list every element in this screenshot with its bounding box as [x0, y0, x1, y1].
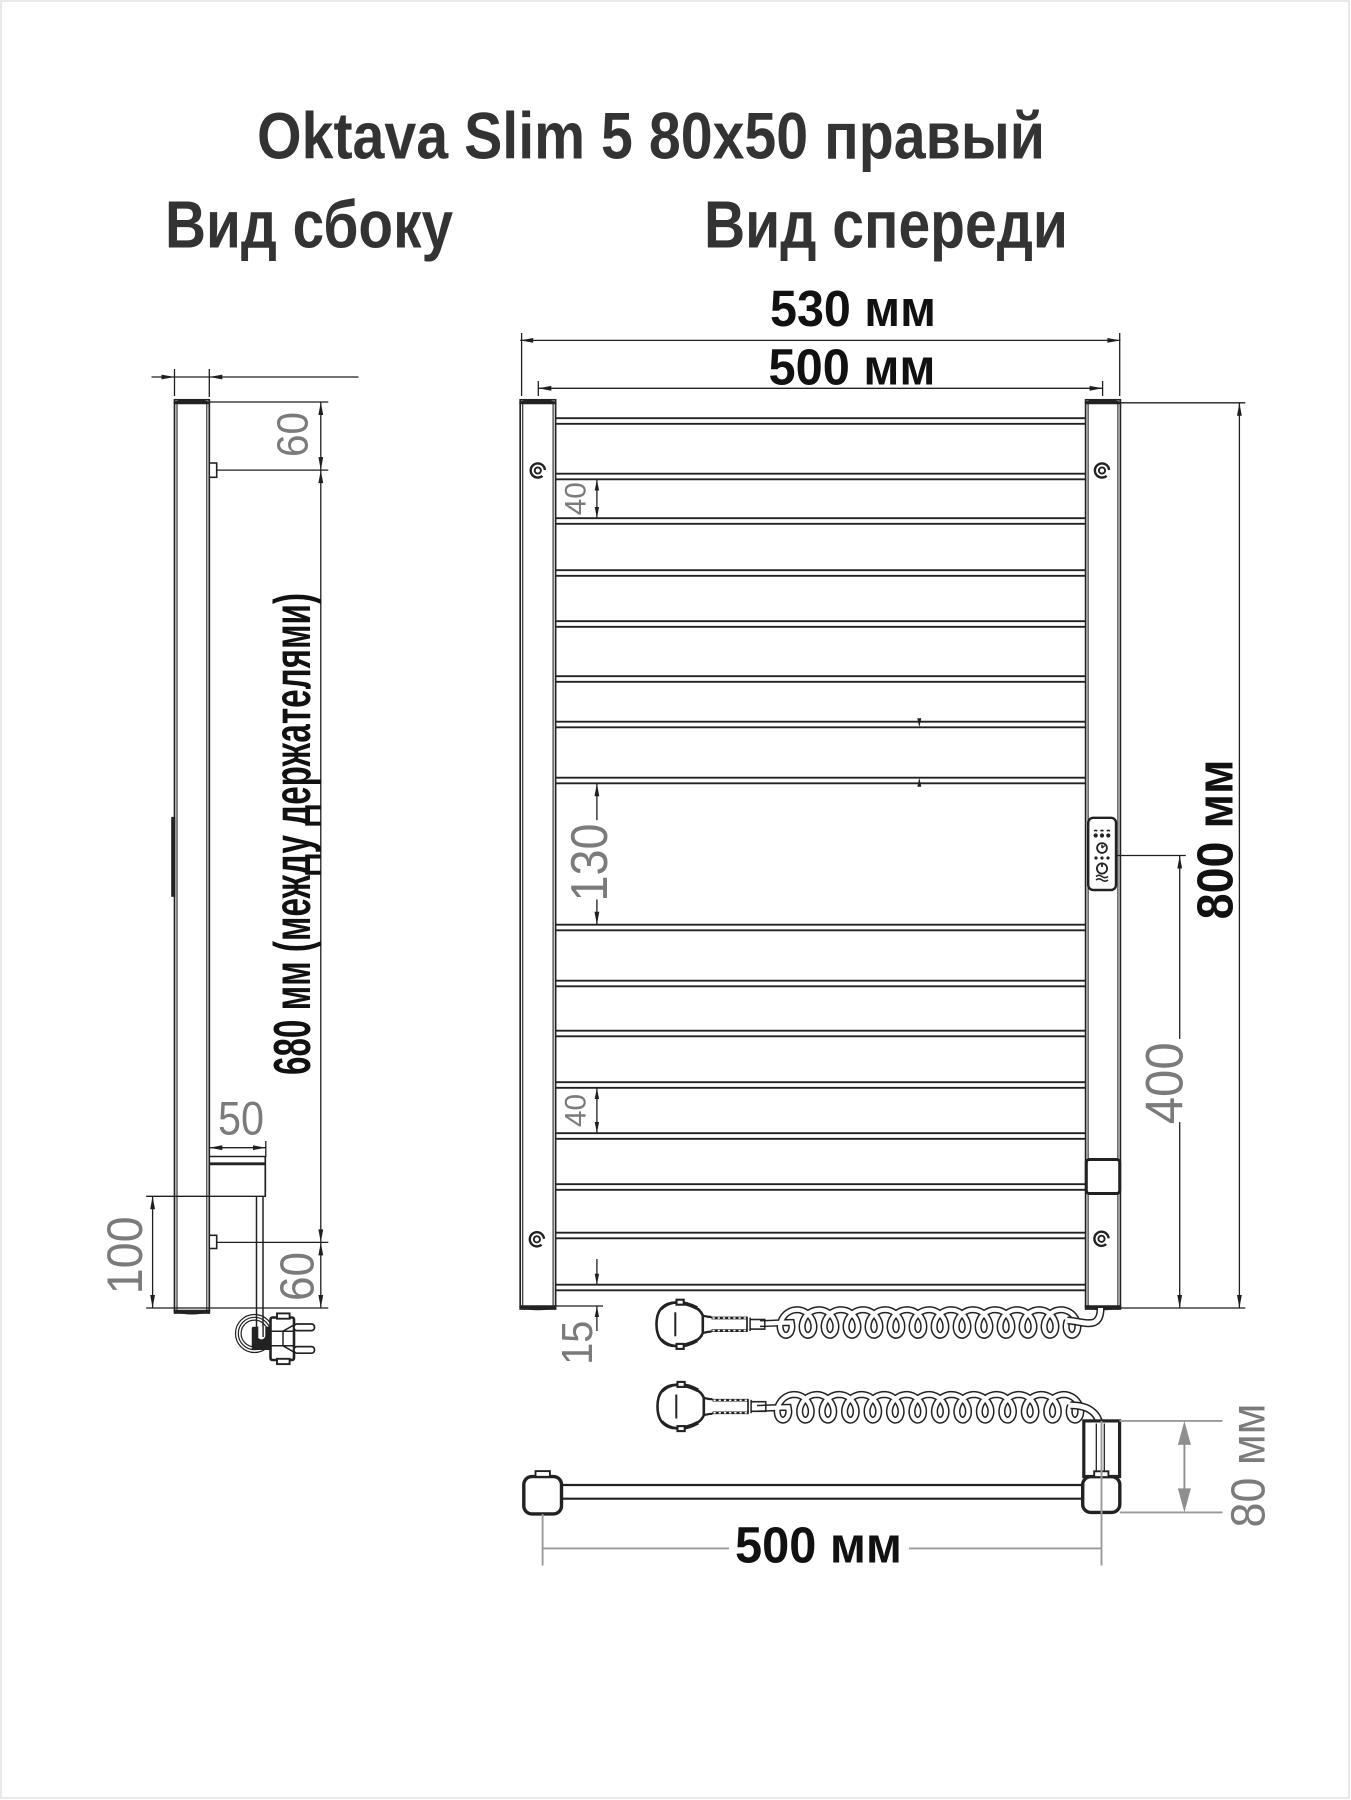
svg-text:130: 130 — [561, 824, 619, 902]
svg-text:60: 60 — [272, 1252, 325, 1301]
svg-text:530 мм: 530 мм — [770, 280, 936, 337]
svg-text:800 мм: 800 мм — [1187, 759, 1244, 919]
svg-text:100: 100 — [97, 1216, 153, 1294]
svg-text:500 мм: 500 мм — [735, 1517, 902, 1574]
svg-text:400: 400 — [1135, 1042, 1194, 1124]
svg-text:15: 15 — [554, 1321, 602, 1365]
svg-text:680 мм (между держателями): 680 мм (между держателями) — [264, 593, 322, 1075]
svg-text:Oktava Slim 5 80x50 правый: Oktava Slim 5 80x50 правый — [257, 99, 1045, 173]
svg-text:80 мм: 80 мм — [1223, 1404, 1276, 1528]
svg-text:40: 40 — [559, 1094, 592, 1127]
svg-text:500 мм: 500 мм — [769, 339, 936, 396]
svg-text:Вид сбоку: Вид сбоку — [165, 188, 453, 263]
svg-text:Вид спереди: Вид спереди — [704, 188, 1068, 263]
svg-text:60: 60 — [270, 412, 318, 457]
svg-text:40: 40 — [559, 482, 592, 515]
svg-text:50: 50 — [218, 1092, 264, 1145]
